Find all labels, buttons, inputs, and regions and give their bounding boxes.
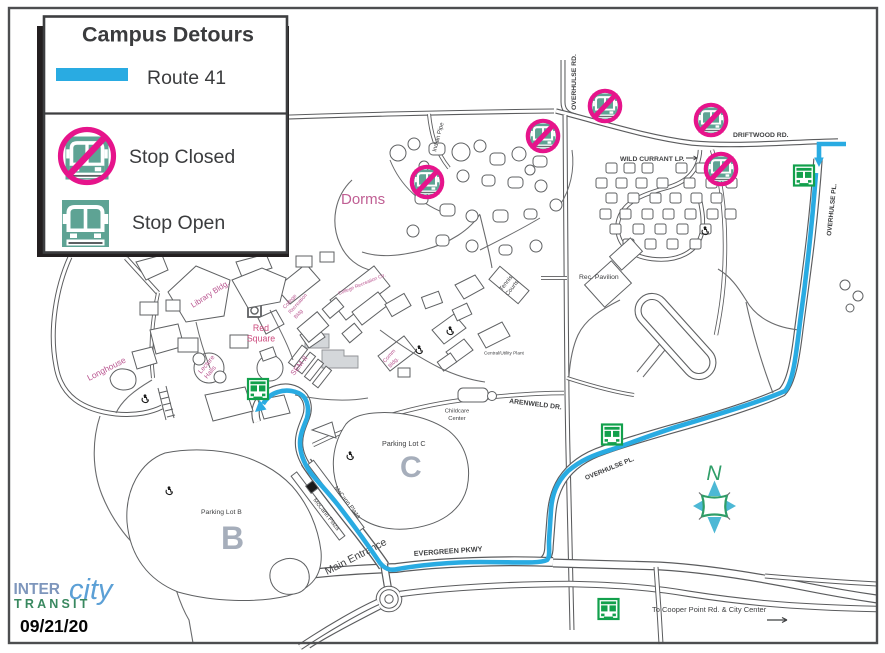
svg-text:OVERHULSE RD.: OVERHULSE RD. xyxy=(571,54,578,110)
svg-text:Stop Open: Stop Open xyxy=(132,212,225,234)
svg-text:Center: Center xyxy=(448,416,465,422)
svg-text:Rec. Pavilion: Rec. Pavilion xyxy=(579,274,619,281)
svg-text:DRIFTWOOD RD.: DRIFTWOOD RD. xyxy=(733,132,789,139)
svg-text:To Cooper Point Rd. & City Cen: To Cooper Point Rd. & City Center xyxy=(652,605,767,614)
svg-text:Stop Closed: Stop Closed xyxy=(129,146,235,168)
svg-text:C: C xyxy=(400,451,422,484)
svg-text:INTER: INTER xyxy=(14,581,61,598)
svg-text:Square: Square xyxy=(247,334,275,344)
svg-text:Childcare: Childcare xyxy=(445,409,470,415)
svg-text:Campus Detours: Campus Detours xyxy=(82,23,254,47)
svg-text:09/21/20: 09/21/20 xyxy=(20,616,88,636)
svg-text:B: B xyxy=(221,520,244,556)
svg-text:Central/Utility Plant: Central/Utility Plant xyxy=(484,351,525,356)
svg-text:Parking Lot C: Parking Lot C xyxy=(382,439,426,448)
svg-text:Route 41: Route 41 xyxy=(147,67,226,89)
svg-text:WILD CURRANT LP.: WILD CURRANT LP. xyxy=(620,156,685,163)
svg-text:Parking Lot B: Parking Lot B xyxy=(201,509,242,516)
svg-text:Dorms: Dorms xyxy=(341,191,385,208)
svg-text:Red: Red xyxy=(253,323,269,333)
svg-text:TRANSIT: TRANSIT xyxy=(14,597,91,611)
